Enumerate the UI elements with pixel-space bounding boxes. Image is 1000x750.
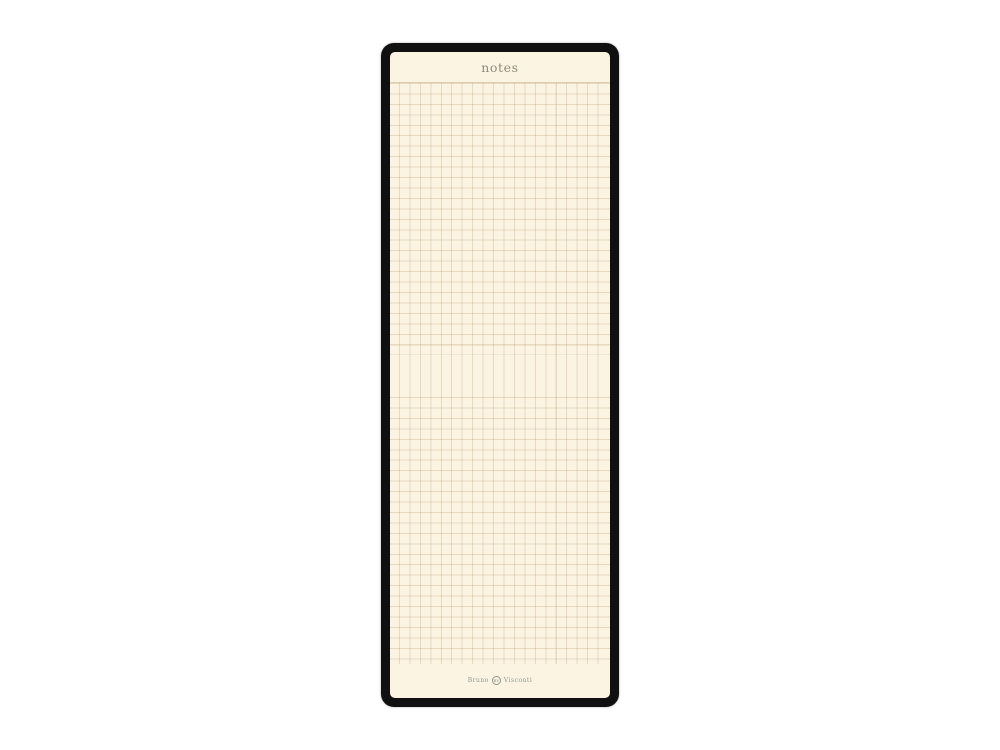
grid-paper-sheet: notes Bruno BV Visconti (390, 52, 610, 698)
horizontal-grid-lines-lower (390, 397, 610, 664)
brand-logo: Bruno BV Visconti (390, 676, 610, 685)
page-background: notes Bruno BV Visconti (0, 0, 1000, 750)
brand-emblem-monogram: BV (493, 679, 499, 683)
horizontal-grid-lines-upper (390, 83, 610, 355)
notes-pad-frame: notes Bruno BV Visconti (381, 43, 619, 707)
brand-name-left: Bruno (468, 676, 489, 685)
brand-name-right: Visconti (504, 676, 532, 685)
grid-area (390, 82, 610, 664)
brand-emblem-icon: BV (492, 676, 501, 685)
pad-title: notes (390, 60, 610, 75)
